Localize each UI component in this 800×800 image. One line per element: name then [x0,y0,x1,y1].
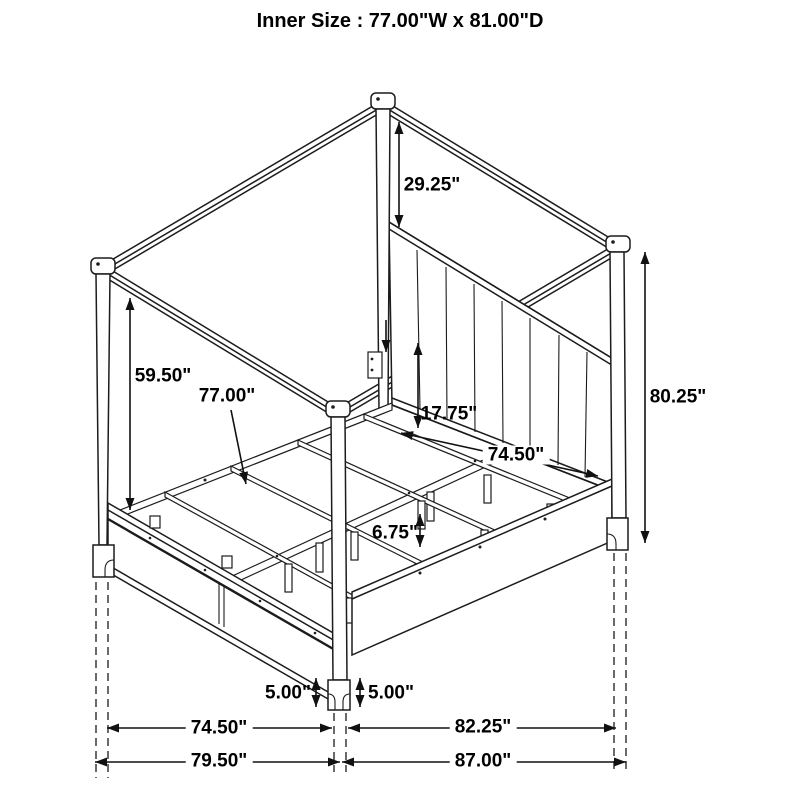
dim-label-rail-depth: 74.50" [483,446,550,465]
corner-cap-right [606,236,630,252]
dim-label-leg-height: 6.75" [372,524,418,543]
dim-label-total-height: 80.25" [650,388,707,407]
left-slat-rail [115,403,392,519]
corner-cap-back [371,93,395,109]
dim-label-post-lower: 59.50" [135,367,192,386]
dim-label-rail-height: 17.75" [421,405,478,424]
footboard [108,503,342,707]
headboard-bracket [368,352,382,378]
page-title: Inner Size : 77.00"W x 81.00"D [0,10,800,33]
dim-label-footboard-outer: 79.50" [186,752,253,771]
post-back [368,109,390,410]
dim-label-headboard-outer: 87.00" [450,752,517,771]
dim-label-slat-width: 77.00" [199,387,256,406]
corner-cap-left [91,258,115,274]
dim-label-foot-left: 5.00" [265,684,311,703]
dim-label-headboard-inner: 82.25" [450,718,517,737]
corner-cap-front [326,401,350,417]
dim-label-foot-right: 5.00" [368,684,414,703]
dim-label-footboard-inner: 74.50" [186,719,253,738]
dim-label-canopy-gap: 29.25" [404,176,461,195]
dimension-diagram: Inner Size : 77.00"W x 81.00"D 29.25" 59… [0,0,800,800]
